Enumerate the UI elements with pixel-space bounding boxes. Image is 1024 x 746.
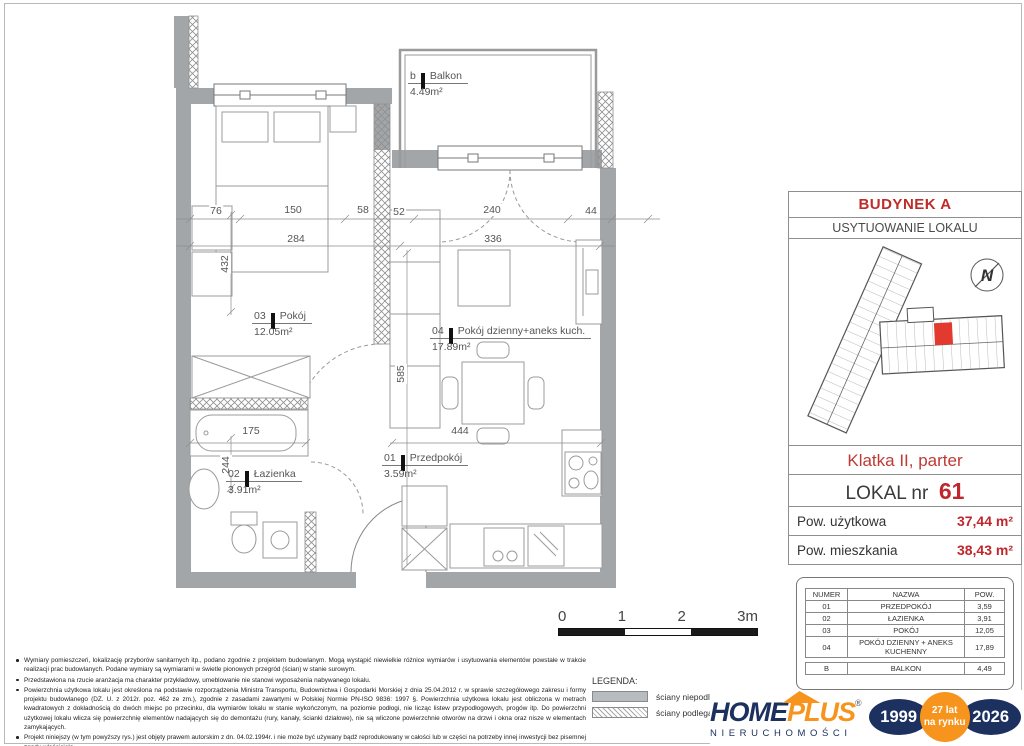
dimension-label: 150 bbox=[283, 204, 303, 216]
bed bbox=[216, 106, 328, 272]
scale-tick: 0 bbox=[558, 608, 566, 625]
washing-machine bbox=[263, 522, 297, 558]
logo-wordmark: HOMEPLUS® NIERUCHOMOŚCI bbox=[710, 695, 861, 739]
dimension-label: 44 bbox=[584, 205, 598, 217]
armchair bbox=[458, 250, 510, 306]
dimension-label: 284 bbox=[286, 233, 306, 245]
toilet bbox=[231, 512, 257, 553]
room-label-lazienka: 02Łazienka 3.91m² bbox=[226, 468, 302, 496]
compass-icon: N bbox=[971, 259, 1003, 291]
table-row: BBALKON4,49 bbox=[806, 663, 1005, 675]
room-label-pokoj: 03Pokój 12.05m² bbox=[252, 310, 312, 338]
info-panel: BUDYNEK A USYTUOWANIE LOKALU bbox=[788, 192, 1022, 690]
fridge bbox=[402, 528, 447, 570]
note-item: Powierzchnia użytkowa lokalu jest określ… bbox=[14, 686, 586, 732]
site-plan: N bbox=[788, 238, 1022, 446]
dimension-label: 585 bbox=[395, 364, 407, 384]
nightstand bbox=[330, 106, 356, 132]
page: 76 150 58 52 240 44 284 336 432 585 244 … bbox=[0, 0, 1024, 746]
roof-icon bbox=[783, 691, 824, 703]
usable-area-row: Pow. użytkowa 37,44 m² bbox=[788, 506, 1022, 536]
scale-tick: 2 bbox=[677, 608, 685, 625]
footer-notes: Wymiary pomieszczeń, lokalizację przybor… bbox=[14, 656, 586, 746]
dimension-label: 52 bbox=[392, 206, 406, 218]
unit-number-row: LOKAL nr 61 bbox=[788, 474, 1022, 507]
staircase-label: Klatka II, parter bbox=[788, 445, 1022, 475]
living-wardrobe bbox=[390, 210, 440, 428]
dimension-label: 76 bbox=[209, 205, 223, 217]
building-title: BUDYNEK A bbox=[788, 191, 1022, 218]
solid-wall-swatch bbox=[592, 691, 648, 702]
scale-tick: 1 bbox=[618, 608, 626, 625]
stove bbox=[562, 430, 602, 496]
dimension-label: 432 bbox=[219, 254, 231, 274]
bathroom-sink bbox=[189, 469, 219, 509]
unit-number: 61 bbox=[939, 478, 965, 504]
dimension-label: 175 bbox=[241, 425, 261, 437]
room-label-balkon: bBalkon 4.49m² bbox=[408, 70, 468, 98]
note-item: Przedstawiona na rzucie aranżacja ma cha… bbox=[14, 676, 586, 685]
table-row: 03POKÓJ12,05 bbox=[806, 625, 1005, 637]
rooms-table: NUMER NAZWA POW. 01PRZEDPOKÓJ3,59 02ŁAZI… bbox=[796, 577, 1014, 690]
unit-label: LOKAL nr bbox=[846, 483, 929, 504]
year-end-badge: 2026 bbox=[961, 699, 1021, 735]
kitchen-sink bbox=[484, 528, 524, 566]
table-row: 01PRZEDPOKÓJ3,59 bbox=[806, 601, 1005, 613]
dimension-label: 444 bbox=[450, 425, 470, 437]
svg-text:N: N bbox=[981, 266, 994, 285]
dimension-label: 58 bbox=[356, 204, 370, 216]
scale-tick: 3m bbox=[737, 608, 758, 625]
dimension-label: 336 bbox=[483, 233, 503, 245]
floor-plan: 76 150 58 52 240 44 284 336 432 585 244 … bbox=[0, 0, 780, 660]
registered-mark: ® bbox=[855, 698, 861, 708]
room-label-pokoj-dzienny: 04Pokój dzienny+aneks kuch. 17.89m² bbox=[430, 325, 591, 353]
hatched-wall-swatch bbox=[592, 707, 648, 718]
logo-subtitle: NIERUCHOMOŚCI bbox=[710, 728, 861, 739]
anniversary-badges: 1999 27 lat na rynku 2026 bbox=[869, 692, 1021, 742]
dimension-label: 240 bbox=[482, 204, 502, 216]
floor-plan-drawing bbox=[0, 0, 780, 660]
kitchen-counter bbox=[450, 524, 602, 568]
anniversary-badge: 27 lat na rynku bbox=[920, 692, 970, 742]
location-title: USYTUOWANIE LOKALU bbox=[788, 217, 1022, 239]
note-item: Projekt niniejszy (w tym powyższy rys.) … bbox=[14, 733, 586, 746]
table-row: 02ŁAZIENKA3,91 bbox=[806, 613, 1005, 625]
tv-unit bbox=[576, 240, 602, 324]
highlighted-unit bbox=[934, 322, 953, 345]
hall-cabinet bbox=[402, 486, 447, 526]
legend-title: LEGENDA: bbox=[592, 676, 792, 686]
room-label-przedpokoj: 01Przedpokój 3.59m² bbox=[382, 452, 468, 480]
table-row: 04POKÓJ DZIENNY + ANEKS KUCHENNY17,89 bbox=[806, 637, 1005, 658]
table-header-row: NUMER NAZWA POW. bbox=[806, 589, 1005, 601]
apartment-area-row: Pow. mieszkania 38,43 m² bbox=[788, 535, 1022, 565]
homeplus-logo: HOMEPLUS® NIERUCHOMOŚCI 1999 27 lat na r… bbox=[710, 690, 1022, 744]
note-item: Wymiary pomieszczeń, lokalizację przybor… bbox=[14, 656, 586, 675]
site-plan-drawing: N bbox=[789, 239, 1021, 445]
wardrobe bbox=[192, 356, 310, 398]
scale-bar: 0 1 2 3m bbox=[558, 608, 758, 636]
